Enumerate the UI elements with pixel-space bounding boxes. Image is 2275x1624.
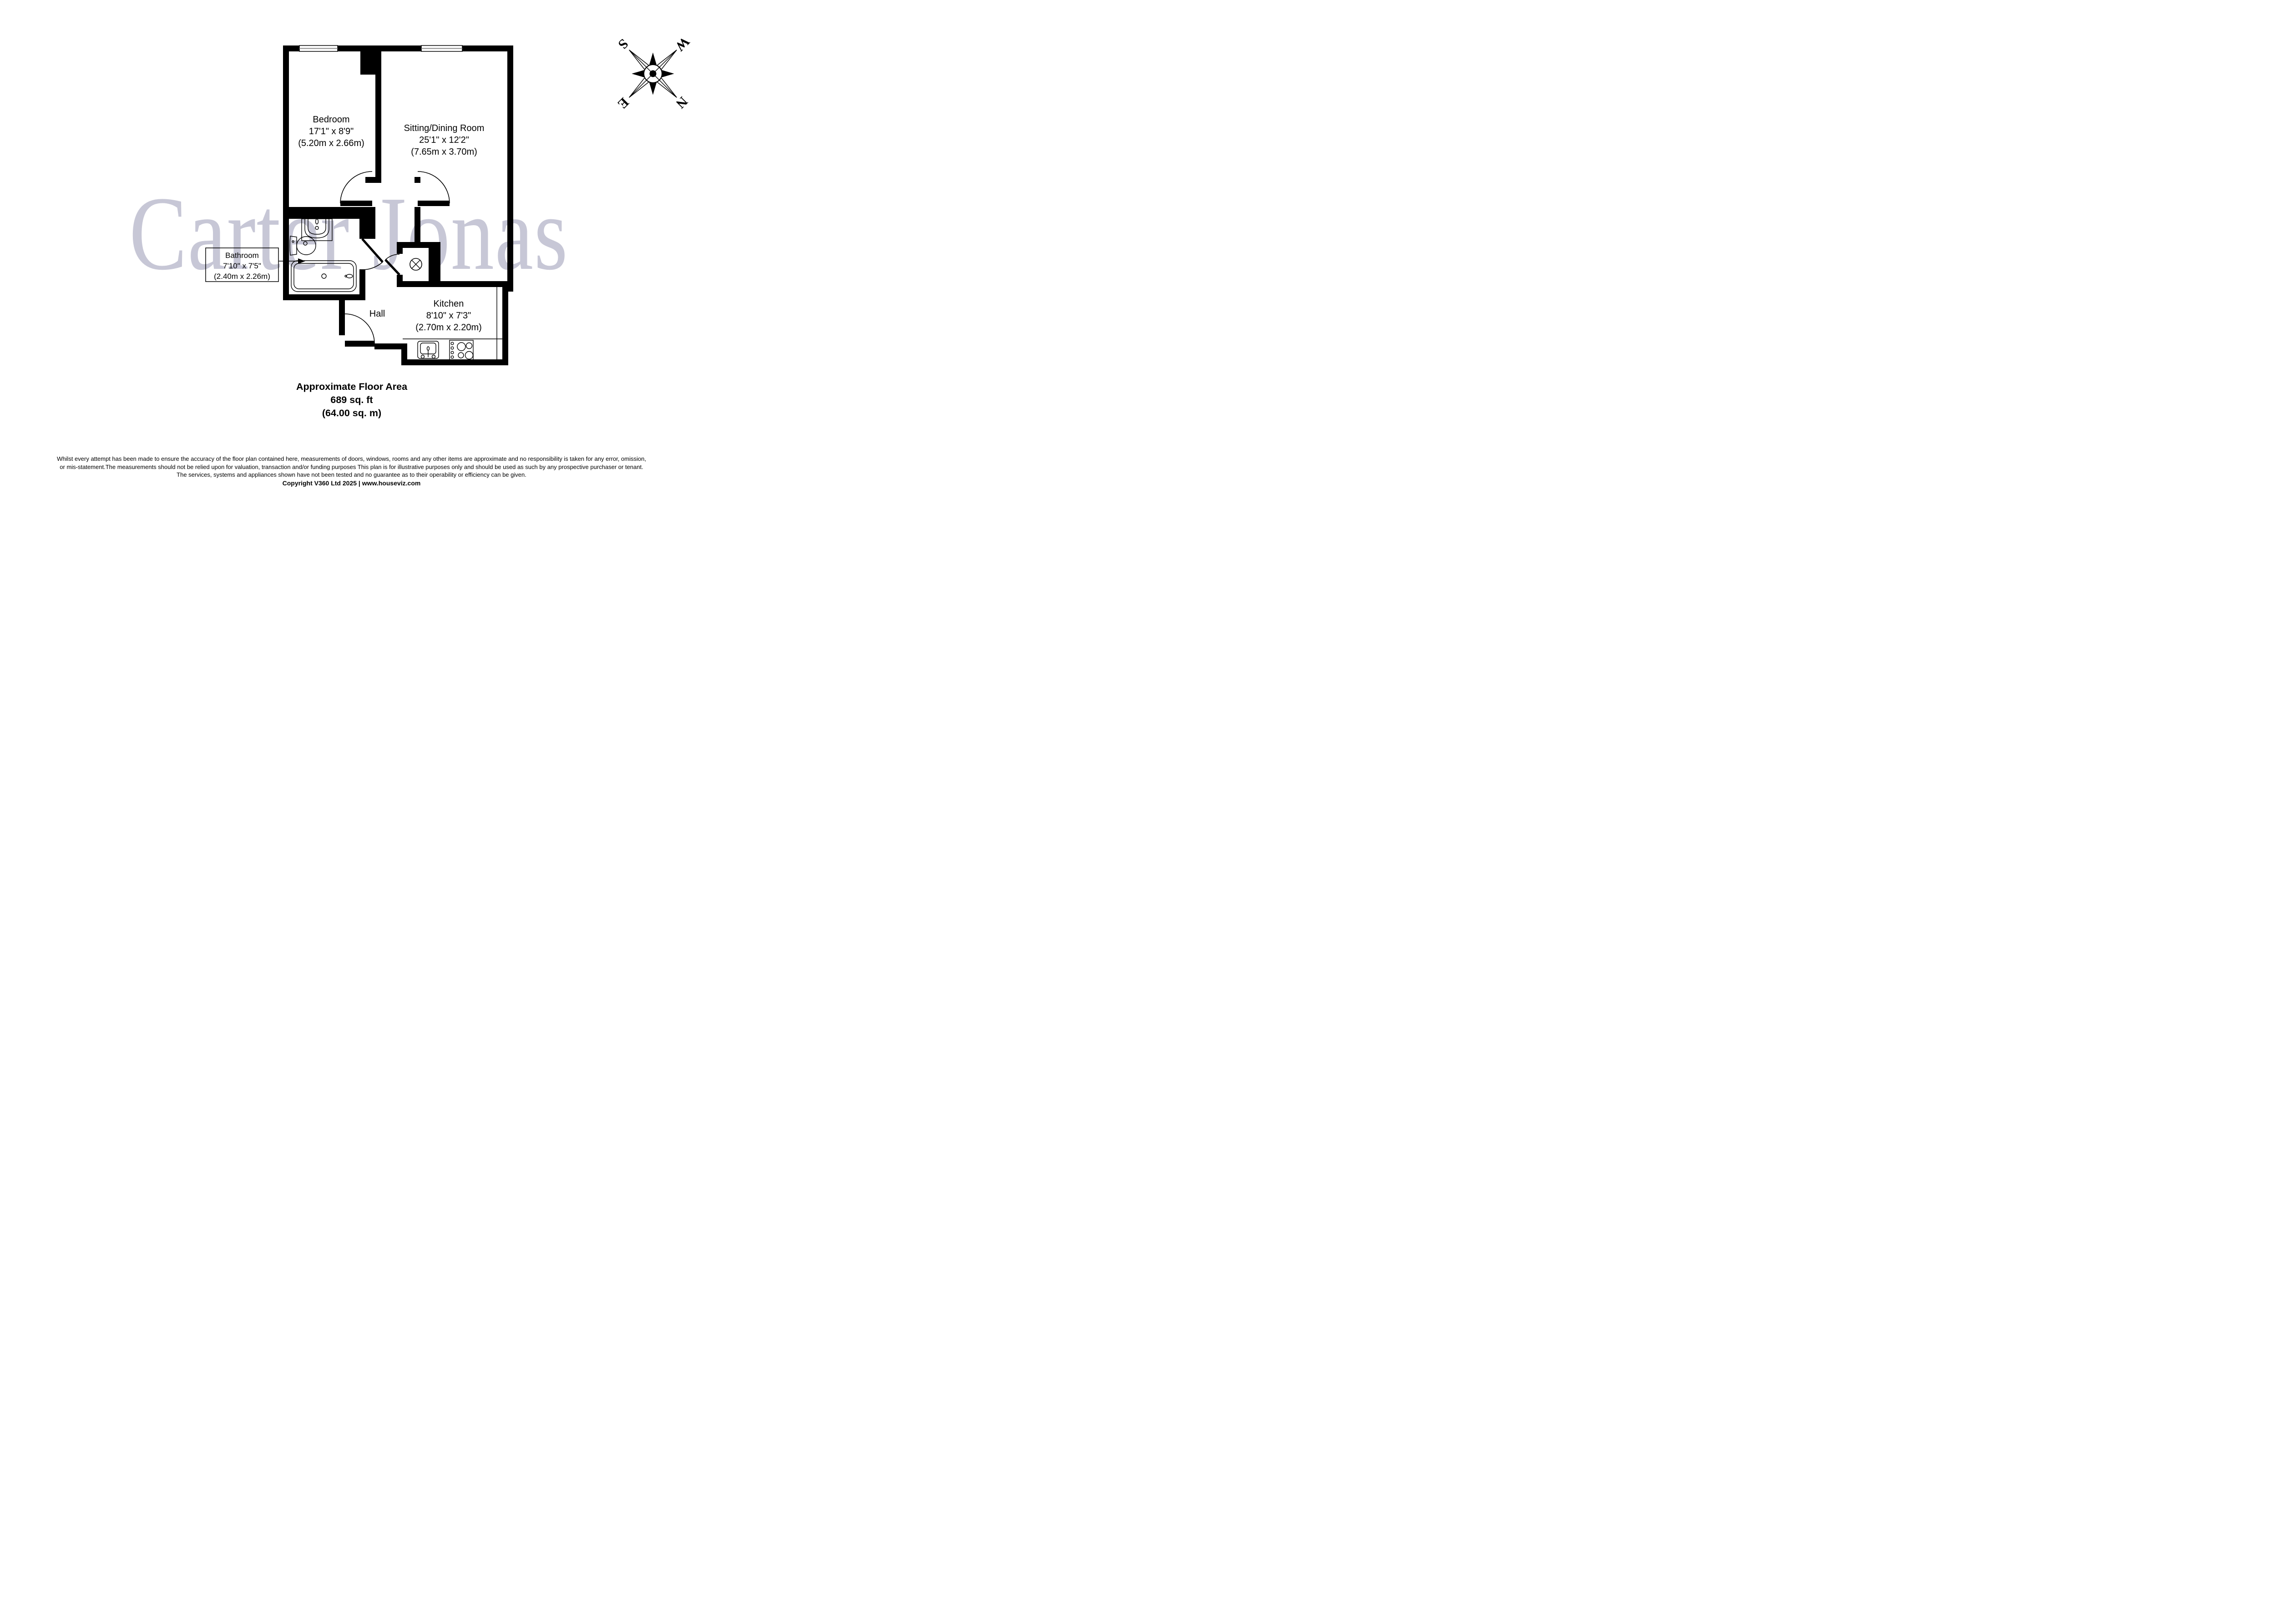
hob-icon [450,340,473,360]
toilet-icon [290,236,316,255]
compass-rose-icon: N S E W [585,4,703,141]
svg-text:(5.20m x 2.66m): (5.20m x 2.66m) [298,138,364,148]
disclaimer-line-1: Whilst every attempt has been made to en… [0,455,703,463]
bedroom-door [340,171,372,206]
bedroom-window [299,45,338,51]
floor-area-summary: Approximate Floor Area 689 sq. ft (64.00… [0,380,703,420]
floor-area-imperial: 689 sq. ft [0,393,703,407]
disclaimer: Whilst every attempt has been made to en… [0,455,703,487]
floor-area-title: Approximate Floor Area [0,380,703,393]
disclaimer-line-2: or mis-statement.The measurements should… [0,463,703,471]
bathroom-pointer-arrow [278,258,305,264]
svg-text:(7.65m x 3.70m): (7.65m x 3.70m) [411,147,477,157]
sitting-room-door [418,171,450,206]
svg-text:Kitchen: Kitchen [434,299,464,309]
bathroom-fixtures [290,219,356,292]
sitting-room-label: Sitting/Dining Room 25'1" x 12'2" (7.65m… [404,123,485,157]
floorplan-drawing: Bedroom 17'1" x 8'9" (5.20m x 2.66m) Sit… [0,0,703,497]
washbasin-icon [302,219,332,241]
svg-text:Bedroom: Bedroom [313,115,349,125]
svg-text:7'10" x 7'5": 7'10" x 7'5" [223,262,261,270]
svg-text:Sitting/Dining Room: Sitting/Dining Room [404,123,485,133]
compass-s: S [615,36,631,52]
svg-text:(2.70m x 2.20m): (2.70m x 2.20m) [415,323,482,333]
floor-area-metric: (64.00 sq. m) [0,407,703,420]
walls [283,45,513,365]
kitchen-label: Kitchen 8'10" x 7'3" (2.70m x 2.20m) [415,299,482,333]
copyright-line: Copyright V360 Ltd 2025 | www.houseviz.c… [0,479,703,488]
bathtub-icon [291,261,356,292]
svg-text:Bathroom: Bathroom [225,251,259,260]
floorplan-page: Carter Jonas [0,0,703,497]
svg-text:8'10" x 7'3": 8'10" x 7'3" [426,311,471,321]
svg-text:Hall: Hall [369,309,385,319]
svg-text:25'1" x 12'2": 25'1" x 12'2" [419,135,469,145]
disclaimer-line-3: The services, systems and appliances sho… [0,471,703,479]
hall-label: Hall [369,309,385,319]
bathroom-door [362,239,383,270]
svg-text:17'1" x 8'9": 17'1" x 8'9" [309,126,354,136]
bedroom-label: Bedroom 17'1" x 8'9" (5.20m x 2.66m) [298,115,364,148]
svg-text:(2.40m x 2.26m): (2.40m x 2.26m) [214,272,270,281]
sitting-room-window [421,45,462,51]
kitchen-sink-icon [418,341,439,358]
